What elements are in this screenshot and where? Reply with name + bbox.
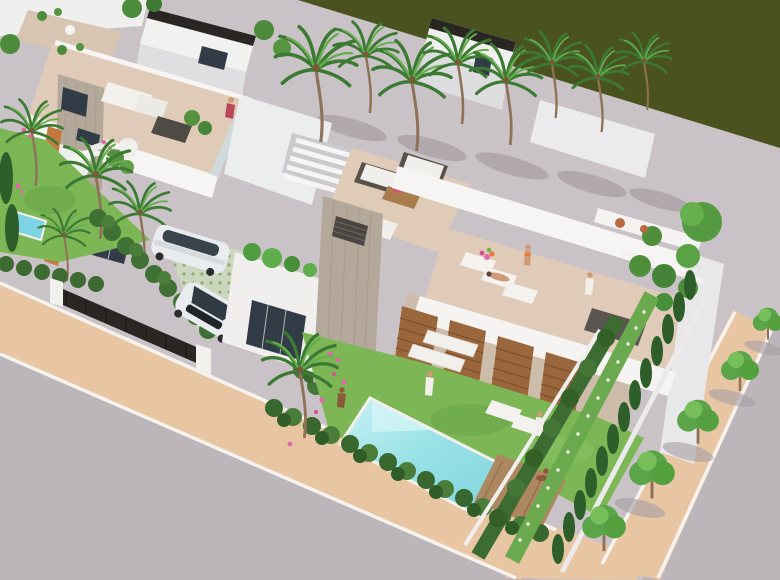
gate-pillar	[196, 344, 211, 376]
architectural-render	[0, 0, 780, 580]
render-canvas	[0, 0, 780, 580]
